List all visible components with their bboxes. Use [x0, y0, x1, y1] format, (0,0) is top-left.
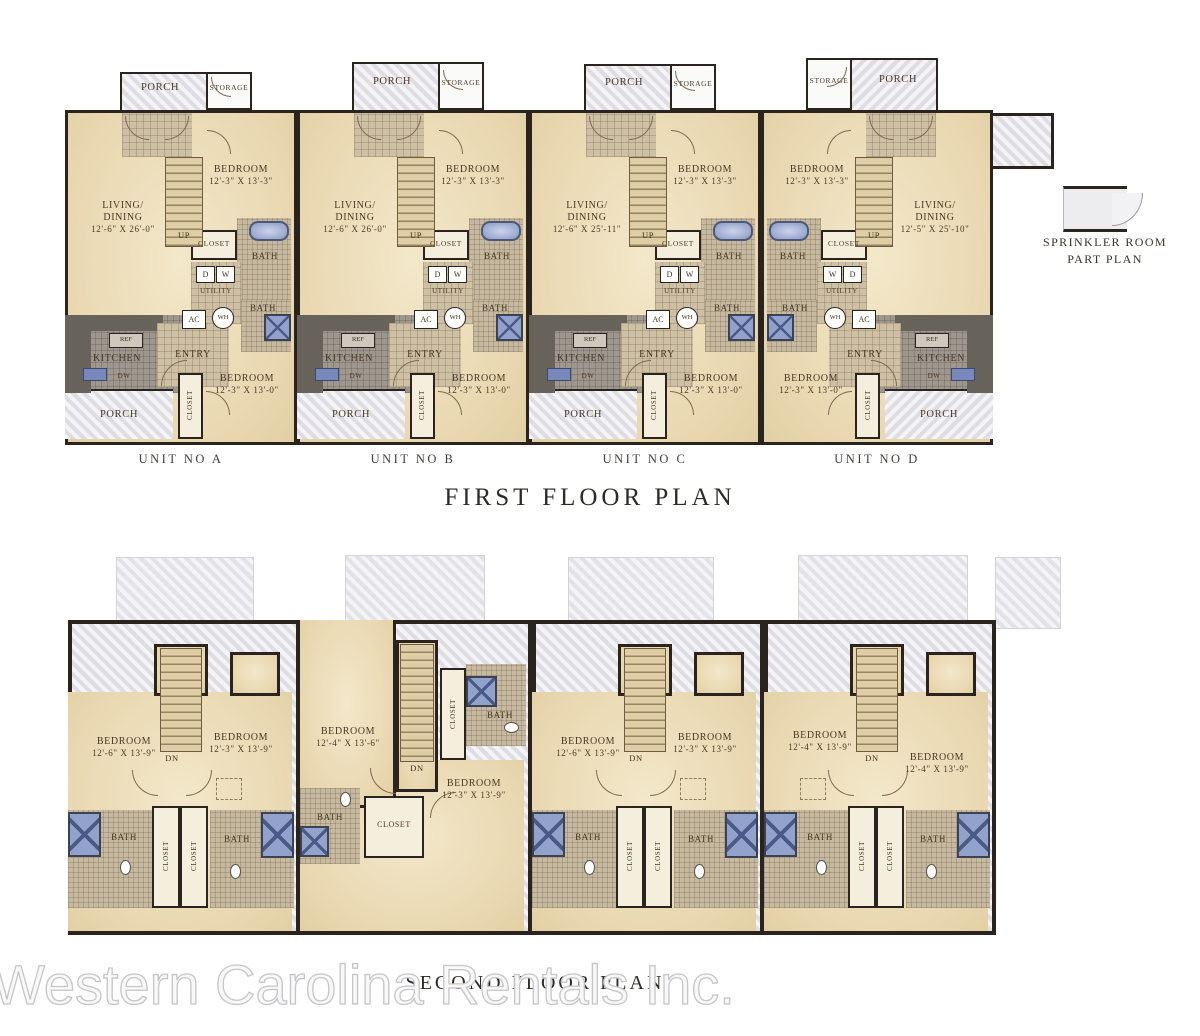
closet-right-label: CLOSET [654, 834, 662, 878]
bedroom1-label: BEDROOM [421, 164, 525, 176]
bath-right-label: BATH [678, 834, 724, 844]
roof-stub [798, 555, 968, 623]
bathtub [249, 221, 289, 241]
toilet [816, 860, 827, 875]
ac-box: AC [414, 310, 438, 329]
porch-label: PORCH [587, 77, 661, 89]
bedroom-right-dims: 12'-4" X 13'-9" [884, 764, 990, 774]
bath-upper-label: BATH [476, 710, 524, 720]
shower [300, 826, 329, 857]
first-floor-unit-a: PORCH STORAGE UP BEDROOM 12'-3" X 13'-3"… [65, 110, 297, 445]
bathtub [769, 221, 809, 241]
bedroom1-label: BEDROOM [765, 164, 869, 176]
bath2-label: BATH [239, 303, 287, 313]
washer-box: W [448, 266, 467, 283]
up-label: UP [394, 231, 438, 241]
toilet [694, 864, 705, 879]
kitchen-label: KITCHEN [305, 353, 393, 365]
kitchen-counter [895, 315, 967, 331]
living-dims: 12'-6" X 25'-11" [535, 224, 639, 234]
up-label: UP [162, 231, 206, 241]
stairs-down [400, 644, 434, 762]
bedroom-bottom-dims: 12'-3" X 13'-9" [422, 790, 526, 800]
first-floor-unit-b: PORCH STORAGE UP BEDROOM 12'-3" X 13'-3"… [297, 110, 529, 445]
unit-a-name: UNIT NO A [101, 452, 261, 467]
kitchen-label: KITCHEN [897, 353, 985, 365]
unit-geometry: PORCH STORAGE UP BEDROOM 12'-3" X 13'-3"… [761, 110, 993, 445]
washer-box: W [680, 266, 699, 283]
bath-right-label: BATH [214, 834, 260, 844]
sprinkler-room-shape [1063, 186, 1127, 232]
kitchen-label: KITCHEN [537, 353, 625, 365]
unit-geometry: PORCH STORAGE UP BEDROOM 12'-3" X 13'-3"… [65, 110, 297, 445]
first-floor-title: FIRST FLOOR PLAN [380, 484, 800, 512]
roof-stub [116, 557, 254, 623]
bath-left-label: BATH [796, 832, 844, 842]
bedroom2-label: BEDROOM [663, 373, 759, 385]
dryer-box: D [428, 266, 447, 283]
unit-geometry: BEDROOM 12'-4" X 13'-6" DN CLOSET BATH B… [300, 620, 532, 935]
toilet [340, 792, 351, 807]
shower [957, 812, 990, 858]
shower [728, 314, 755, 341]
shower [767, 314, 794, 341]
bathtub [481, 221, 521, 241]
bedroom2-dims: 12'-3" X 13'-0" [199, 385, 295, 395]
bedroom2-label: BEDROOM [431, 373, 527, 385]
water-heater: WH [212, 307, 234, 329]
closet-lower-label: CLOSET [362, 820, 426, 829]
living-label-2: DINING [71, 212, 175, 224]
unit-d-name: UNIT NO D [797, 452, 957, 467]
toilet [926, 864, 937, 879]
dormer-extension [694, 652, 744, 696]
roof-stub [568, 557, 714, 623]
water-heater: WH [676, 307, 698, 329]
bedroom-left-label: BEDROOM [768, 730, 872, 742]
storage-label: STORAGE [204, 84, 254, 93]
kitchen-counter [323, 315, 395, 331]
washer-box: W [823, 266, 842, 283]
bath-right-label: BATH [910, 834, 956, 844]
second-floor-unit-d: DN BEDROOM 12'-4" X 13'-9" BEDROOM 12'-4… [764, 620, 996, 935]
second-floor-unit-b: BEDROOM 12'-4" X 13'-6" DN CLOSET BATH B… [300, 620, 532, 935]
bedroom-right-label: BEDROOM [652, 732, 758, 744]
bedroom-right-label: BEDROOM [188, 732, 294, 744]
closet-label: CLOSET [819, 240, 869, 249]
sprinkler-caption-line1: SPRINKLER ROOM [1022, 234, 1188, 251]
utility-label: UTILITY [812, 287, 872, 295]
closet-left-label: CLOSET [858, 834, 866, 878]
floor-plan-sheet: PORCH STORAGE UP BEDROOM 12'-3" X 13'-3"… [0, 0, 1200, 1036]
closet-label: CLOSET [418, 383, 426, 427]
attic-access [216, 778, 242, 800]
living-dims: 12'-6" X 26'-0" [71, 224, 175, 234]
bedroom-top-label: BEDROOM [296, 726, 400, 738]
entry-label: ENTRY [625, 349, 689, 361]
water-heater: WH [444, 307, 466, 329]
dishwasher-label: DW [109, 372, 139, 380]
bedroom-right-label: BEDROOM [884, 752, 990, 764]
first-floor-unit-c: PORCH STORAGE UP BEDROOM 12'-3" X 13'-3"… [529, 110, 761, 445]
bedroom-left-label: BEDROOM [536, 736, 640, 748]
utility-label: UTILITY [650, 287, 710, 295]
bedroom-bottom-label: BEDROOM [422, 778, 526, 790]
washer-box: W [216, 266, 235, 283]
water-heater: WH [824, 307, 846, 329]
living-dims: 12'-6" X 26'-0" [303, 224, 407, 234]
bath1-label: BATH [705, 251, 753, 261]
living-label-2: DINING [535, 212, 639, 224]
bedroom-right-dims: 12'-3" X 13'-9" [652, 744, 758, 754]
bath2-label: BATH [771, 303, 819, 313]
roof-stub [345, 555, 485, 623]
unit-geometry: DN BEDROOM 12'-6" X 13'-9" BEDROOM 12'-3… [532, 620, 764, 935]
bedroom2-label: BEDROOM [199, 373, 295, 385]
cooktop [547, 368, 571, 381]
porch-label: PORCH [861, 74, 935, 86]
bedroom2-dims: 12'-3" X 13'-0" [763, 385, 859, 395]
toilet [584, 860, 595, 875]
shower [261, 812, 294, 858]
closet-upper-label: CLOSET [449, 692, 457, 736]
sprinkler-caption: SPRINKLER ROOM PART PLAN [1022, 234, 1188, 268]
living-label-1: LIVING/ [535, 200, 639, 212]
closet-label: CLOSET [653, 240, 703, 249]
dn-label: DN [856, 754, 888, 764]
cooktop [951, 368, 975, 381]
bedroom-top-dims: 12'-4" X 13'-6" [296, 738, 400, 748]
living-label-1: LIVING/ [71, 200, 175, 212]
toilet [120, 860, 131, 875]
second-floor-unit-c: DN BEDROOM 12'-6" X 13'-9" BEDROOM 12'-3… [532, 620, 764, 935]
bath-left-label: BATH [100, 832, 148, 842]
roof-stub [995, 557, 1061, 629]
storage-label: STORAGE [668, 80, 718, 89]
kitchen-counter [555, 315, 627, 331]
second-floor-title: SECOND FLOOR PLAN [330, 972, 740, 995]
refrigerator: REF [341, 333, 375, 348]
bath1-label: BATH [473, 251, 521, 261]
sprinkler-door-swing [1112, 193, 1143, 226]
bath-left-label: BATH [564, 832, 612, 842]
dishwasher-label: DW [341, 372, 371, 380]
bedroom2-label: BEDROOM [763, 373, 859, 385]
toilet [504, 722, 519, 733]
bedroom1-label: BEDROOM [189, 164, 293, 176]
unit-geometry: DN BEDROOM 12'-4" X 13'-9" BEDROOM 12'-4… [764, 620, 996, 935]
bedroom-left-dims: 12'-4" X 13'-9" [768, 742, 872, 752]
rear-porch-label: PORCH [81, 409, 157, 421]
closet-right-label: CLOSET [190, 834, 198, 878]
ac-box: AC [182, 310, 206, 329]
kitchen-label: KITCHEN [73, 353, 161, 365]
attic-access [800, 778, 826, 800]
ac-box: AC [852, 310, 876, 329]
bedroom1-dims: 12'-3" X 13'-3" [421, 176, 525, 186]
dn-label: DN [620, 754, 652, 764]
dryer-box: D [843, 266, 862, 283]
unit-b-name: UNIT NO B [333, 452, 493, 467]
shower [764, 812, 797, 857]
shower [496, 314, 523, 341]
dishwasher-label: DW [573, 372, 603, 380]
porch-label: PORCH [355, 76, 429, 88]
bath1-label: BATH [769, 251, 817, 261]
first-floor-unit-d: PORCH STORAGE UP BEDROOM 12'-3" X 13'-3"… [761, 110, 993, 445]
dryer-box: D [660, 266, 679, 283]
closet-label: CLOSET [650, 383, 658, 427]
closet-left-label: CLOSET [626, 834, 634, 878]
closet-right-label: CLOSET [886, 834, 894, 878]
dormer-extension [926, 652, 976, 696]
closet-label: CLOSET [189, 240, 239, 249]
bedroom-left-label: BEDROOM [72, 736, 176, 748]
sprinkler-caption-line2: PART PLAN [1022, 251, 1188, 268]
rear-porch-label: PORCH [545, 409, 621, 421]
bedroom2-dims: 12'-3" X 13'-0" [431, 385, 527, 395]
shower [725, 812, 758, 858]
bedroom-right-dims: 12'-3" X 13'-9" [188, 744, 294, 754]
shower [466, 676, 497, 707]
entry-label: ENTRY [393, 349, 457, 361]
up-label: UP [852, 231, 896, 241]
side-bump-out [993, 113, 1054, 169]
porch-label: PORCH [123, 82, 197, 94]
living-label-1: LIVING/ [883, 200, 987, 212]
unit-c-name: UNIT NO C [565, 452, 725, 467]
bath2-label: BATH [703, 303, 751, 313]
closet-left-label: CLOSET [162, 834, 170, 878]
dishwasher-label: DW [919, 372, 949, 380]
dn-label: DN [156, 754, 188, 764]
refrigerator: REF [573, 333, 607, 348]
entry-label: ENTRY [161, 349, 225, 361]
dormer-extension [230, 652, 280, 696]
refrigerator: REF [109, 333, 143, 348]
cooktop [83, 368, 107, 381]
living-label-1: LIVING/ [303, 200, 407, 212]
dn-label: DN [399, 764, 435, 774]
kitchen-counter [91, 315, 163, 331]
bath2-label: BATH [471, 303, 519, 313]
bath1-label: BATH [241, 251, 289, 261]
utility-label: UTILITY [186, 287, 246, 295]
bath-lower-label: BATH [304, 812, 356, 822]
rear-porch-label: PORCH [901, 409, 977, 421]
closet-label: CLOSET [421, 240, 471, 249]
bedroom2-dims: 12'-3" X 13'-0" [663, 385, 759, 395]
toilet [230, 864, 241, 879]
closet-label: CLOSET [186, 383, 194, 427]
shower [68, 812, 101, 857]
unit-geometry: DN BEDROOM 12'-6" X 13'-9" BEDROOM 12'-3… [68, 620, 300, 935]
bedroom1-dims: 12'-3" X 13'-3" [765, 176, 869, 186]
bathtub [713, 221, 753, 241]
shower [264, 314, 291, 341]
closet-label: CLOSET [864, 383, 872, 427]
unit-geometry: PORCH STORAGE UP BEDROOM 12'-3" X 13'-3"… [529, 110, 761, 445]
up-label: UP [626, 231, 670, 241]
utility-label: UTILITY [418, 287, 478, 295]
cooktop [315, 368, 339, 381]
bedroom1-dims: 12'-3" X 13'-3" [189, 176, 293, 186]
rear-porch-label: PORCH [313, 409, 389, 421]
shower [532, 812, 565, 857]
living-dims: 12'-5" X 25'-10" [883, 224, 987, 234]
attic-access [680, 778, 706, 800]
living-label-2: DINING [303, 212, 407, 224]
second-floor-unit-a: DN BEDROOM 12'-6" X 13'-9" BEDROOM 12'-3… [68, 620, 300, 935]
storage-label: STORAGE [804, 77, 854, 86]
dryer-box: D [196, 266, 215, 283]
bedroom1-dims: 12'-3" X 13'-3" [653, 176, 757, 186]
bedroom1-label: BEDROOM [653, 164, 757, 176]
ac-box: AC [646, 310, 670, 329]
living-label-2: DINING [883, 212, 987, 224]
storage-label: STORAGE [436, 79, 486, 88]
entry-label: ENTRY [833, 349, 897, 361]
unit-geometry: PORCH STORAGE UP BEDROOM 12'-3" X 13'-3"… [297, 110, 529, 445]
refrigerator: REF [915, 333, 949, 348]
